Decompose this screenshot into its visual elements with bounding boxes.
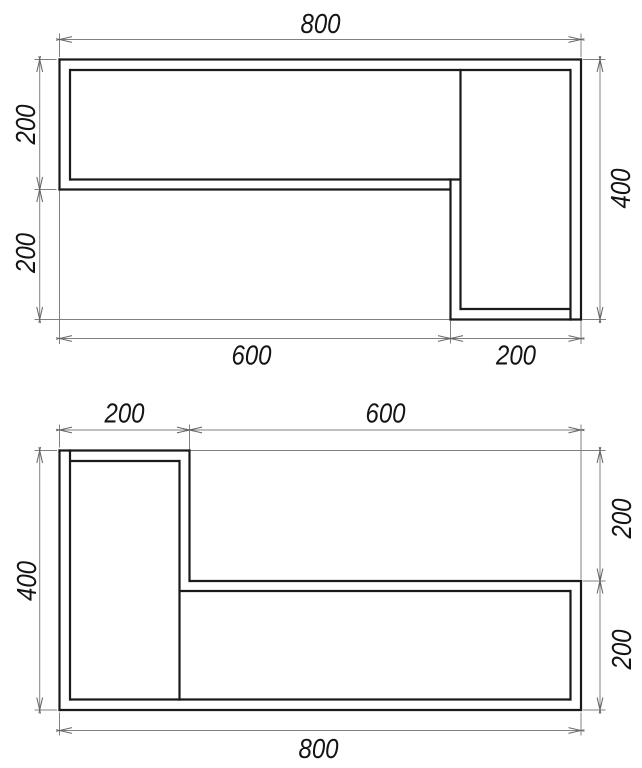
svg-text:200: 200 [495,340,536,371]
svg-text:200: 200 [10,232,41,273]
svg-text:600: 600 [366,398,407,429]
svg-text:200: 200 [606,629,637,670]
svg-text:200: 200 [10,104,41,145]
svg-text:800: 800 [301,8,342,39]
svg-text:800: 800 [299,733,340,764]
svg-text:200: 200 [104,398,145,429]
svg-text:600: 600 [232,340,273,371]
svg-text:400: 400 [11,560,42,601]
svg-text:200: 200 [606,498,637,539]
svg-text:400: 400 [605,168,636,209]
